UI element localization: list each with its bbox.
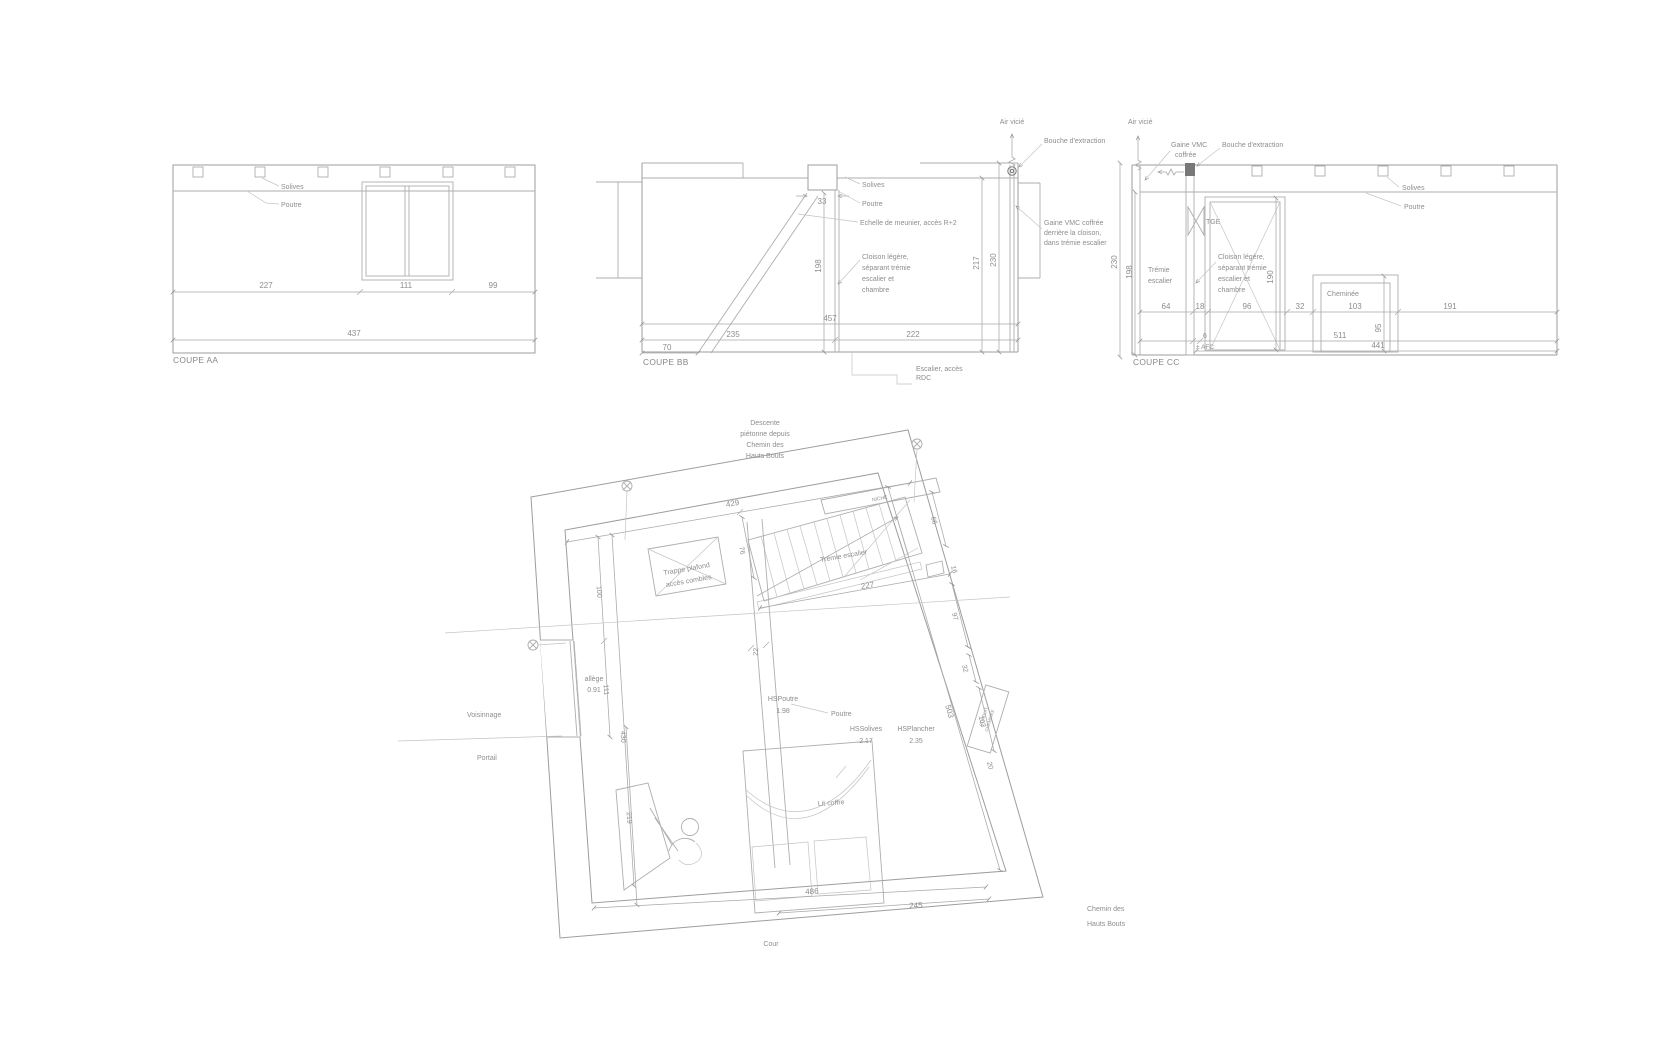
svg-text:76: 76 <box>737 546 745 555</box>
cc-flow-arrow-icon <box>1158 169 1184 175</box>
svg-text:Trémie: Trémie <box>1148 267 1170 274</box>
svg-text:245: 245 <box>909 901 923 911</box>
plan-height-notes: HSPoutre 1.98 Poutre HSSolives 2.17 HSPl… <box>768 696 936 745</box>
plan-tremie-label: Trémie escalier <box>820 549 869 564</box>
coupe-bb-section: 33 198 Solives Poutre Echelle de meunier… <box>596 119 1107 384</box>
aa-caption: COUPE AA <box>173 355 218 365</box>
svg-text:Cloison légère,: Cloison légère, <box>862 254 909 261</box>
cc-tge-icon <box>1188 207 1204 235</box>
svg-text:Hauts Bouts: Hauts Bouts <box>746 453 785 460</box>
svg-text:457: 457 <box>823 314 837 323</box>
bb-caption: COUPE BB <box>643 357 689 367</box>
plan-portail-label: Portail <box>477 755 497 762</box>
cc-dim-190: 190 <box>1266 270 1275 284</box>
svg-text:Escalier, accès: Escalier, accès <box>916 366 963 373</box>
bb-solives-label: Solives <box>862 182 885 189</box>
cc-poutre-label: Poutre <box>1404 204 1425 211</box>
bb-ladder <box>698 193 818 353</box>
svg-text:2.35: 2.35 <box>909 738 923 745</box>
svg-text:235: 235 <box>726 330 740 339</box>
svg-text:20: 20 <box>985 761 994 770</box>
aa-poutre-leader <box>247 191 279 204</box>
cc-solives-icons <box>1252 166 1514 176</box>
svg-text:18: 18 <box>1196 302 1205 311</box>
plan-window <box>540 640 581 737</box>
plan-boundary-line <box>398 736 562 741</box>
svg-text:HSPoutre: HSPoutre <box>768 696 798 703</box>
cc-solives-leader <box>1387 177 1399 187</box>
svg-text:escalier: escalier <box>1148 278 1173 285</box>
cc-gaine-note: Gaine VMC coffrée <box>1145 142 1207 180</box>
svg-text:441: 441 <box>1371 341 1385 350</box>
svg-text:103: 103 <box>1348 302 1362 311</box>
bb-echelle-leader <box>798 214 858 222</box>
svg-text:Hauts Bouts: Hauts Bouts <box>1087 921 1126 928</box>
svg-text:Chemin des: Chemin des <box>1087 906 1125 913</box>
cc-cloison-note: Cloison légère, séparant trémie escalier… <box>1196 254 1267 294</box>
svg-text:1.98: 1.98 <box>776 708 790 715</box>
svg-text:511: 511 <box>1334 331 1347 340</box>
bb-escalier-note: Escalier, accès RDC <box>852 352 963 384</box>
aa-window <box>362 182 453 280</box>
architectural-drawing-sheet: Solives Poutre 227 111 99 437 COUPE AA 3… <box>0 0 1680 1043</box>
svg-text:219: 219 <box>625 812 633 824</box>
cc-cheminee: Cheminée 95 <box>1313 275 1398 352</box>
bb-dim-230: 230 <box>989 253 998 267</box>
svg-text:escalier et: escalier et <box>862 276 894 283</box>
drawing-svg: Solives Poutre 227 111 99 437 COUPE AA 3… <box>0 0 1680 1043</box>
coupe-cc-section: TGE 190 Cheminée 95 Trémie escalier Cloi… <box>1110 119 1557 367</box>
plan-allege-label: allège 0.91 <box>585 676 604 694</box>
svg-text:429: 429 <box>725 498 740 509</box>
plan-conduit: CONDUIT CHEMINÉE <box>967 685 1009 753</box>
svg-text:222: 222 <box>906 330 920 339</box>
svg-text:227: 227 <box>860 580 875 591</box>
coupe-aa-section: Solives Poutre 227 111 99 437 COUPE AA <box>173 165 535 365</box>
plan-poutre-label: Poutre <box>831 711 852 718</box>
bb-air-arrow-icon <box>1009 134 1015 167</box>
svg-text:486: 486 <box>805 887 819 897</box>
svg-text:16: 16 <box>949 565 958 574</box>
svg-text:64: 64 <box>1162 302 1171 311</box>
plan-beam: 22 <box>747 519 790 868</box>
aa-dim-111: 111 <box>400 281 413 290</box>
aa-dim-227: 227 <box>259 281 273 290</box>
cc-bouche-leader <box>1197 148 1220 166</box>
svg-text:70: 70 <box>663 343 672 352</box>
aa-solives-label: Solives <box>281 184 304 191</box>
svg-text:2.17: 2.17 <box>859 738 873 745</box>
svg-text:Cloison légère,: Cloison légère, <box>1218 254 1265 261</box>
cc-poutre-leader <box>1366 193 1401 206</box>
svg-text:97: 97 <box>950 612 959 621</box>
cc-air-vicie-label: Air vicié <box>1128 119 1153 126</box>
bb-air-vicie-label: Air vicié <box>1000 119 1025 126</box>
aa-solives-leader <box>262 178 279 186</box>
svg-text:503: 503 <box>943 704 955 720</box>
svg-text:RDC: RDC <box>916 375 931 382</box>
cc-tremie-label: Trémie escalier <box>1148 267 1173 285</box>
svg-text:HSSolives: HSSolives <box>850 726 883 733</box>
svg-text:chambre: chambre <box>1218 287 1245 294</box>
svg-text:198: 198 <box>1125 265 1134 279</box>
bb-poutre-label: Poutre <box>862 201 883 208</box>
svg-text:111: 111 <box>602 684 610 695</box>
aa-wall-outline <box>173 165 535 353</box>
plan-trappe: Trappe plafond accès combles <box>648 537 726 596</box>
plan-lit-label: Lit coffre <box>818 799 845 808</box>
aa-poutre-label: Poutre <box>281 202 302 209</box>
cc-caption: COUPE CC <box>1133 357 1180 367</box>
svg-text:230: 230 <box>1110 255 1119 269</box>
svg-text:± AFC: ± AFC <box>1196 344 1214 351</box>
svg-text:séparant trémie: séparant trémie <box>862 265 911 272</box>
svg-text:66: 66 <box>929 516 938 525</box>
svg-text:Chemin des: Chemin des <box>746 442 784 449</box>
bb-bouche-icon <box>1008 167 1016 175</box>
svg-text:coffrée: coffrée <box>1175 152 1196 159</box>
bb-cloison-note: Cloison légère, séparant trémie escalier… <box>838 254 911 294</box>
svg-text:séparant trémie: séparant trémie <box>1218 265 1267 272</box>
plan-desk <box>616 783 670 890</box>
svg-text:33: 33 <box>818 197 827 206</box>
svg-text:96: 96 <box>1243 302 1252 311</box>
aa-dim-chain: 227 111 99 437 <box>173 281 535 340</box>
bb-poutre-leader <box>838 191 860 203</box>
cc-solives-label: Solives <box>1402 185 1425 192</box>
svg-text:191: 191 <box>1443 302 1457 311</box>
cc-bouche-label: Bouche d'extraction <box>1222 142 1283 149</box>
bb-echelle-label: Echelle de meunier, accès R+2 <box>860 220 957 227</box>
aa-dim-99: 99 <box>489 281 498 290</box>
svg-text:escalier et: escalier et <box>1218 276 1250 283</box>
bb-dim-217: 217 <box>972 256 981 270</box>
svg-text:0.91: 0.91 <box>587 687 601 694</box>
plan-stair-post <box>926 561 944 577</box>
bb-left-annex <box>596 182 642 278</box>
bb-right-annex <box>1018 183 1040 278</box>
bb-dim-198: 198 <box>814 259 823 273</box>
svg-text:derrière la cloison,: derrière la cloison, <box>1044 230 1101 237</box>
floor-plan: NICHE Trémie escalier Trappe plafond acc… <box>398 420 1126 948</box>
svg-text:32: 32 <box>960 664 969 673</box>
svg-text:430: 430 <box>619 731 627 743</box>
svg-text:Descente: Descente <box>750 420 780 427</box>
aa-solives-icons <box>193 167 515 177</box>
svg-text:dans trémie escalier: dans trémie escalier <box>1044 240 1107 247</box>
svg-text:100: 100 <box>595 586 603 598</box>
bb-poutre-icon <box>808 165 837 190</box>
aa-dim-437: 437 <box>347 329 361 338</box>
svg-text:Gaine VMC: Gaine VMC <box>1171 142 1207 149</box>
svg-text:95: 95 <box>1374 323 1383 332</box>
plan-stair-cloison <box>757 562 922 609</box>
bb-bouche-label: Bouche d'extraction <box>1044 138 1105 145</box>
svg-text:6: 6 <box>1203 333 1207 340</box>
cc-bouche-icon <box>1185 163 1195 176</box>
svg-text:accès combles: accès combles <box>665 574 712 589</box>
cc-gaine-duct <box>1186 165 1194 355</box>
svg-text:piétonne depuis: piétonne depuis <box>740 431 790 438</box>
svg-text:Gaine VMC coffrée: Gaine VMC coffrée <box>1044 220 1104 227</box>
svg-text:allège: allège <box>585 676 604 683</box>
plan-voisinnage-label: Voisinnage <box>467 712 501 719</box>
svg-text:HSPlancher: HSPlancher <box>897 726 935 733</box>
bb-gaine-note: Gaine VMC coffrée derrière la cloison, d… <box>1016 206 1107 247</box>
svg-text:chambre: chambre <box>862 287 889 294</box>
plan-dim-22: 22 <box>753 648 761 656</box>
svg-text:103: 103 <box>977 715 987 728</box>
svg-text:Cheminée: Cheminée <box>1327 291 1359 298</box>
bb-bouche-leader <box>1019 144 1042 167</box>
svg-text:32: 32 <box>1296 302 1305 311</box>
plan-cour-label: Cour <box>763 941 779 948</box>
bb-dim-chain: 457 235 222 70 <box>642 314 1018 353</box>
